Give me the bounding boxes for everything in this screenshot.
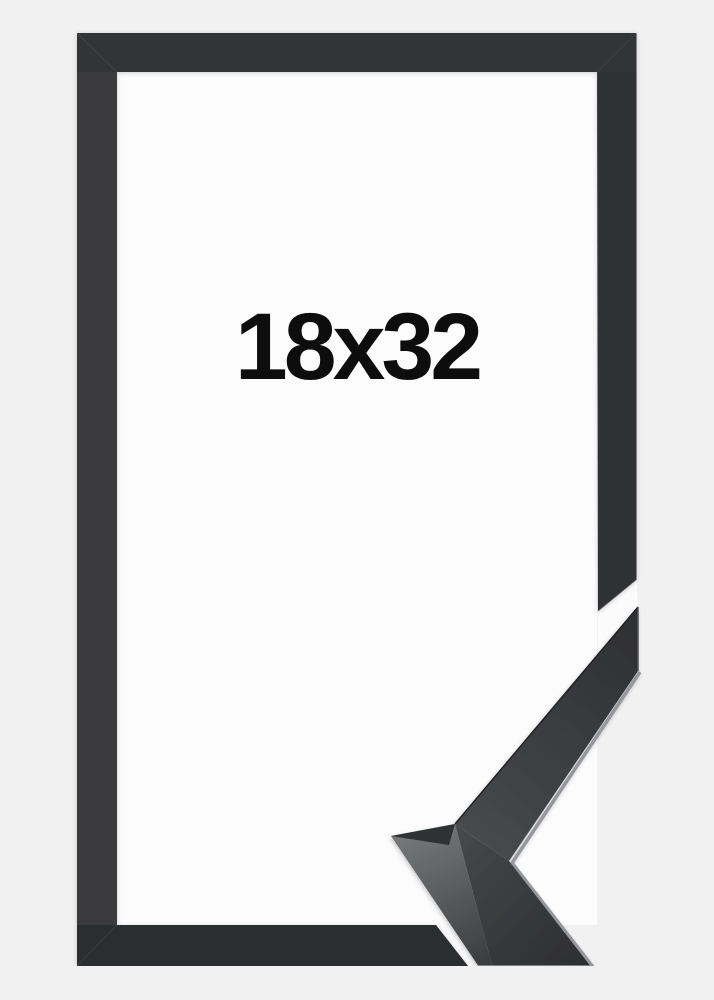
frame-top-bar [77, 33, 637, 72]
photo-bottom-margin [0, 966, 714, 1000]
size-label: 18x32 [0, 297, 714, 397]
product-photo-frame-18x32: 18x32 [0, 0, 714, 1000]
frame-bottom-bar [77, 925, 468, 966]
frame-illustration [0, 0, 714, 1000]
frame-left-bar [77, 33, 117, 966]
